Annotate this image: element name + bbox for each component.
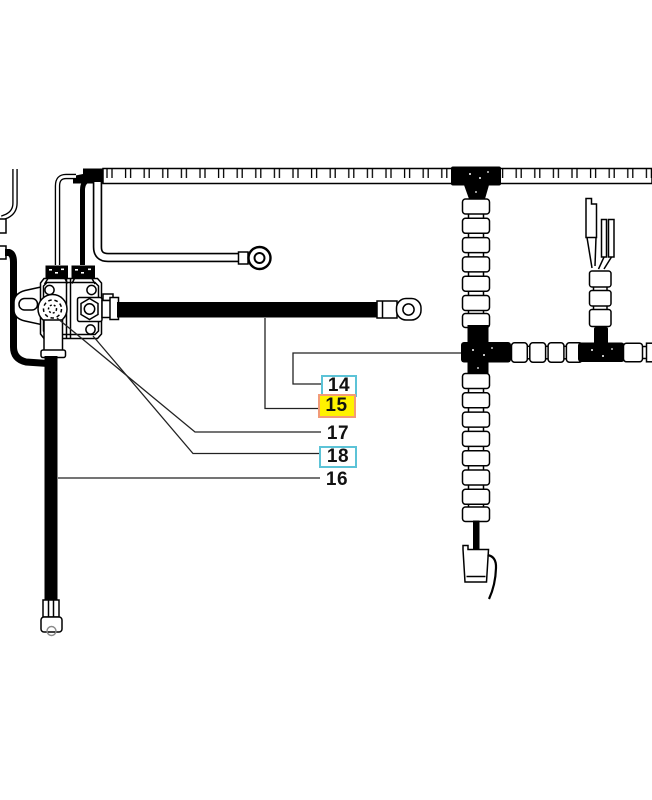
edge-connector-upper bbox=[0, 219, 6, 233]
ring-terminal-icon bbox=[249, 247, 271, 269]
harness-tee-junction-top bbox=[451, 167, 501, 200]
callout-17[interactable]: 17 bbox=[320, 423, 356, 443]
connector-chain-right bbox=[586, 199, 614, 327]
switch-knob bbox=[38, 295, 67, 324]
harness-cross-junction bbox=[461, 325, 511, 374]
switch-bottom-post bbox=[41, 320, 66, 358]
ring-terminal-wire bbox=[98, 182, 271, 269]
cable-lug bbox=[397, 299, 422, 321]
wiring-harness-diagram: 14 15 17 18 16 bbox=[0, 0, 652, 800]
leader-14 bbox=[293, 353, 461, 384]
ground-cable bbox=[41, 356, 62, 636]
leader-15 bbox=[265, 318, 318, 409]
callout-leader-lines bbox=[57, 318, 461, 478]
mounting-bracket bbox=[14, 287, 41, 325]
spade-terminal-icons bbox=[586, 199, 614, 258]
callout-18[interactable]: 18 bbox=[319, 446, 357, 469]
boot-connector bbox=[463, 546, 489, 583]
trunk-harness-vertical bbox=[461, 199, 511, 599]
terminal-stud-nut bbox=[78, 298, 103, 322]
retainer-clip-icon bbox=[488, 555, 497, 599]
battery-cable bbox=[117, 299, 421, 321]
switch-feed-wires bbox=[58, 177, 92, 266]
leader-18 bbox=[93, 336, 319, 454]
callout-16[interactable]: 16 bbox=[319, 469, 355, 491]
cable-stub bbox=[102, 294, 119, 320]
battery-switch bbox=[14, 266, 119, 358]
cable-end-terminal bbox=[41, 600, 62, 636]
harness-tee-junction-right bbox=[578, 327, 625, 362]
main-harness-top bbox=[73, 167, 652, 200]
wire-crimp bbox=[239, 252, 249, 264]
callout-15[interactable]: 15 bbox=[318, 394, 356, 418]
cable-ferrule bbox=[377, 301, 397, 318]
branch-harness-horizontal bbox=[512, 327, 652, 362]
